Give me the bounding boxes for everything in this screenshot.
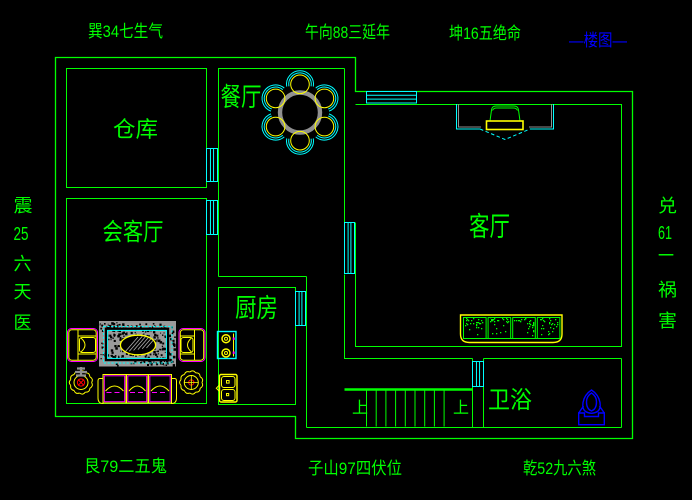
svg-text:61: 61 xyxy=(658,223,672,243)
svg-text:25: 25 xyxy=(14,224,29,244)
svg-text:上: 上 xyxy=(453,399,469,417)
svg-text:仓库: 仓库 xyxy=(113,117,158,142)
svg-text:—楼图—: —楼图— xyxy=(569,31,627,50)
svg-text:上: 上 xyxy=(352,399,368,417)
svg-text:卫浴: 卫浴 xyxy=(488,387,532,414)
svg-text:午向88三延年: 午向88三延年 xyxy=(305,23,390,42)
svg-text:艮79二五鬼: 艮79二五鬼 xyxy=(84,457,167,476)
svg-text:子山97四伏位: 子山97四伏位 xyxy=(308,459,402,478)
svg-text:会客厅: 会客厅 xyxy=(103,219,164,246)
svg-text:祸: 祸 xyxy=(658,280,677,300)
svg-text:巽34七生气: 巽34七生气 xyxy=(88,22,163,41)
svg-text:六: 六 xyxy=(14,254,32,274)
svg-text:震: 震 xyxy=(14,196,33,216)
svg-text:一: 一 xyxy=(658,246,674,266)
svg-text:害: 害 xyxy=(658,311,677,331)
svg-text:天: 天 xyxy=(14,282,32,302)
svg-text:兑: 兑 xyxy=(658,196,677,216)
svg-text:医: 医 xyxy=(14,313,32,333)
svg-text:客厅: 客厅 xyxy=(469,212,510,242)
svg-text:坤16五绝命: 坤16五绝命 xyxy=(449,24,521,43)
svg-text:餐厅: 餐厅 xyxy=(221,82,262,112)
svg-text:厨房: 厨房 xyxy=(235,293,278,323)
svg-text:乾52九六煞: 乾52九六煞 xyxy=(523,459,596,478)
